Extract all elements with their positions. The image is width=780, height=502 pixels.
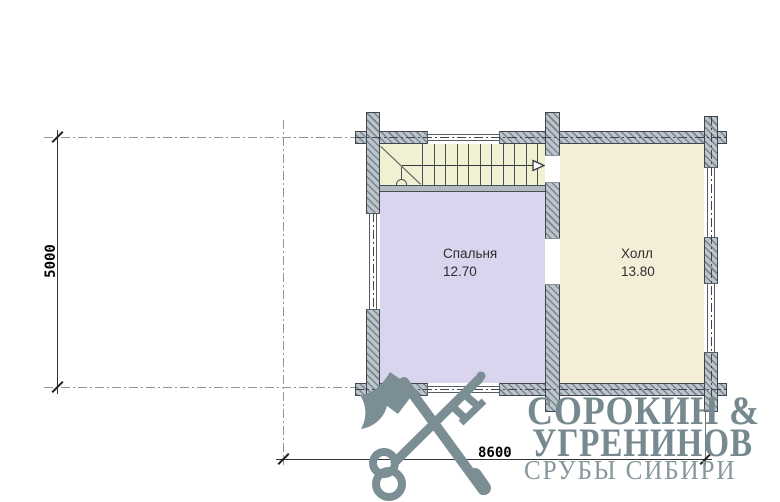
room-area: 12.70 (443, 263, 497, 281)
room-area: 13.80 (621, 263, 655, 281)
extension-line-left-axis (283, 120, 284, 465)
extension-line-bottom (44, 387, 360, 388)
room-name: Спальня (443, 245, 497, 263)
stair-direction-line (402, 165, 534, 166)
extension-line-top (44, 137, 360, 138)
wall-axis-right (711, 116, 712, 412)
door-opening (545, 238, 560, 285)
floor-plan-canvas: 5000 8600 Спальня 12.70 Холл 13.80 (0, 0, 780, 502)
bedroom-label: Спальня 12.70 (443, 245, 497, 281)
dimension-value-vertical: 5000 (43, 234, 59, 288)
wall-axis-left (373, 213, 374, 310)
room-bedroom (380, 191, 545, 383)
hall-label: Холл 13.80 (621, 245, 655, 281)
axe-and-key-emblem-icon (340, 362, 515, 502)
stair-partition (380, 185, 545, 192)
room-name: Холл (621, 245, 655, 263)
stair-opening (545, 155, 560, 183)
logo-text-line3: СРУБЫ СИБИРИ (524, 457, 736, 484)
wall-axis-top (355, 137, 727, 138)
